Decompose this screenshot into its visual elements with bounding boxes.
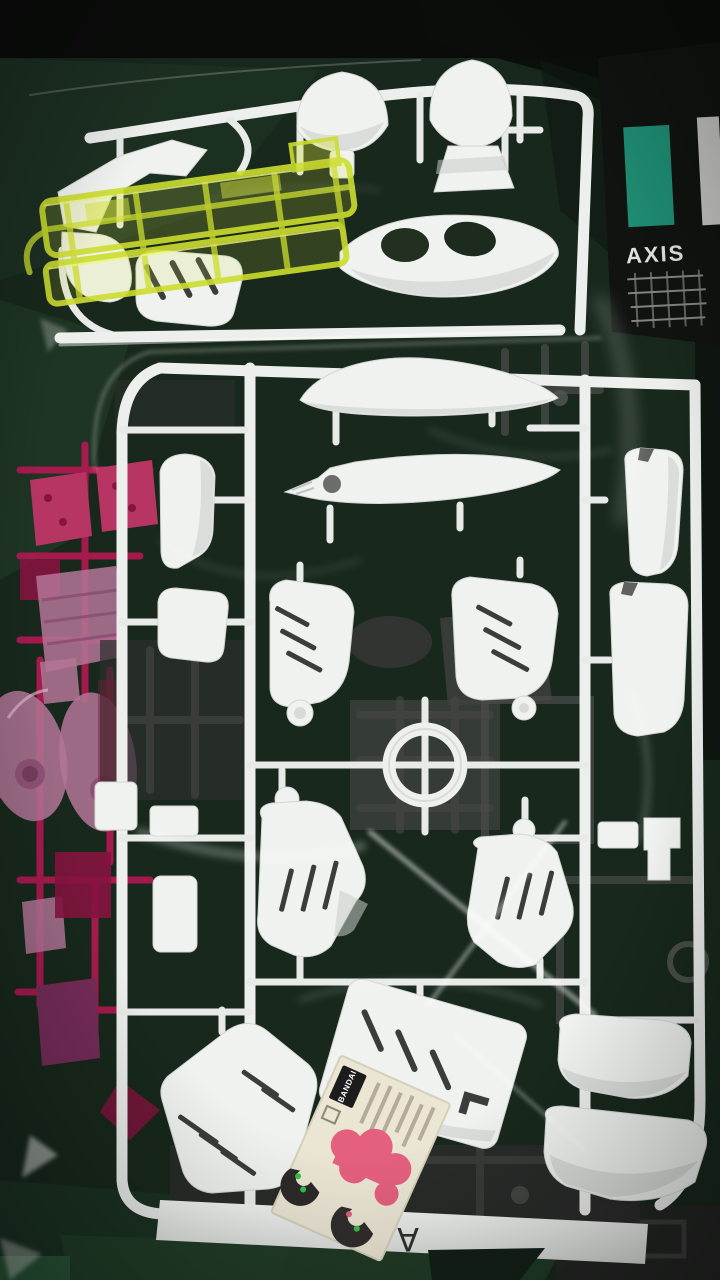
photo-model-kit-runners: AXIS [0, 0, 720, 1280]
photo-canvas: AXIS [0, 0, 720, 1280]
vignette [0, 0, 720, 1280]
